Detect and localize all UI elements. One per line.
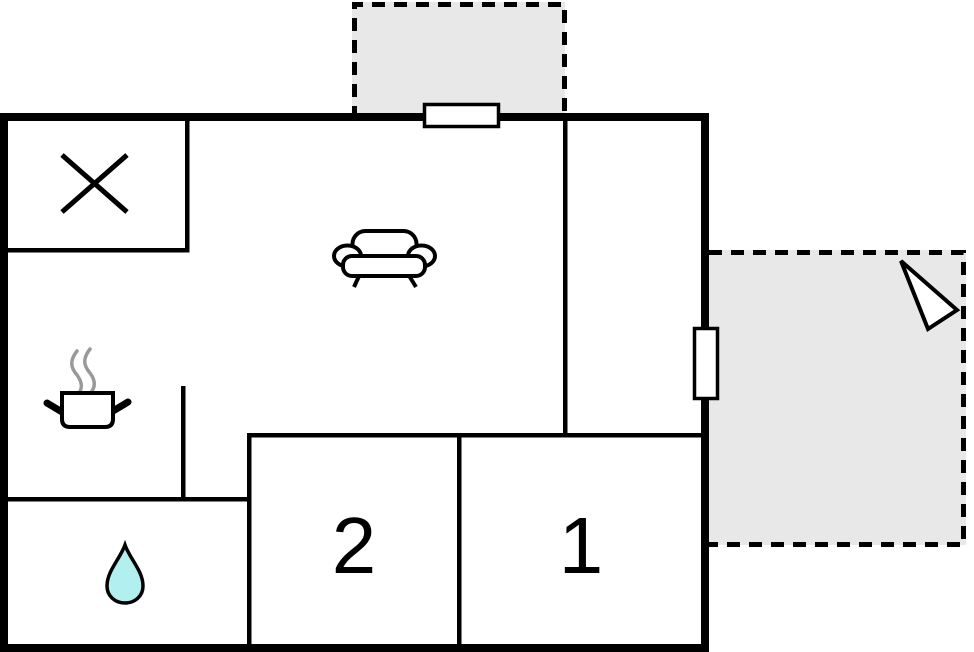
sofa-seat [343, 256, 425, 276]
bedroom-1-number: 1 [559, 501, 604, 590]
wall-xroom-right [185, 121, 190, 252]
floor-plan: 2 1 [0, 0, 974, 652]
wall-kitchen [181, 386, 186, 499]
pot-body [62, 393, 113, 427]
floor-plan-canvas: 2 1 [0, 0, 974, 652]
wall-bathroom-right [247, 433, 252, 644]
wall-bathroom-top [8, 497, 251, 502]
terrace-top-fill [352, 2, 565, 119]
terrace-top [352, 2, 565, 119]
wall-bedrooms-top [247, 433, 703, 438]
wall-livingroom-right [563, 121, 568, 435]
wall-bedroom-divider [457, 437, 462, 644]
bedroom-2-number: 2 [332, 501, 377, 590]
window-right [695, 329, 718, 399]
wall-xroom-bottom [8, 248, 190, 253]
window-top [425, 105, 499, 127]
